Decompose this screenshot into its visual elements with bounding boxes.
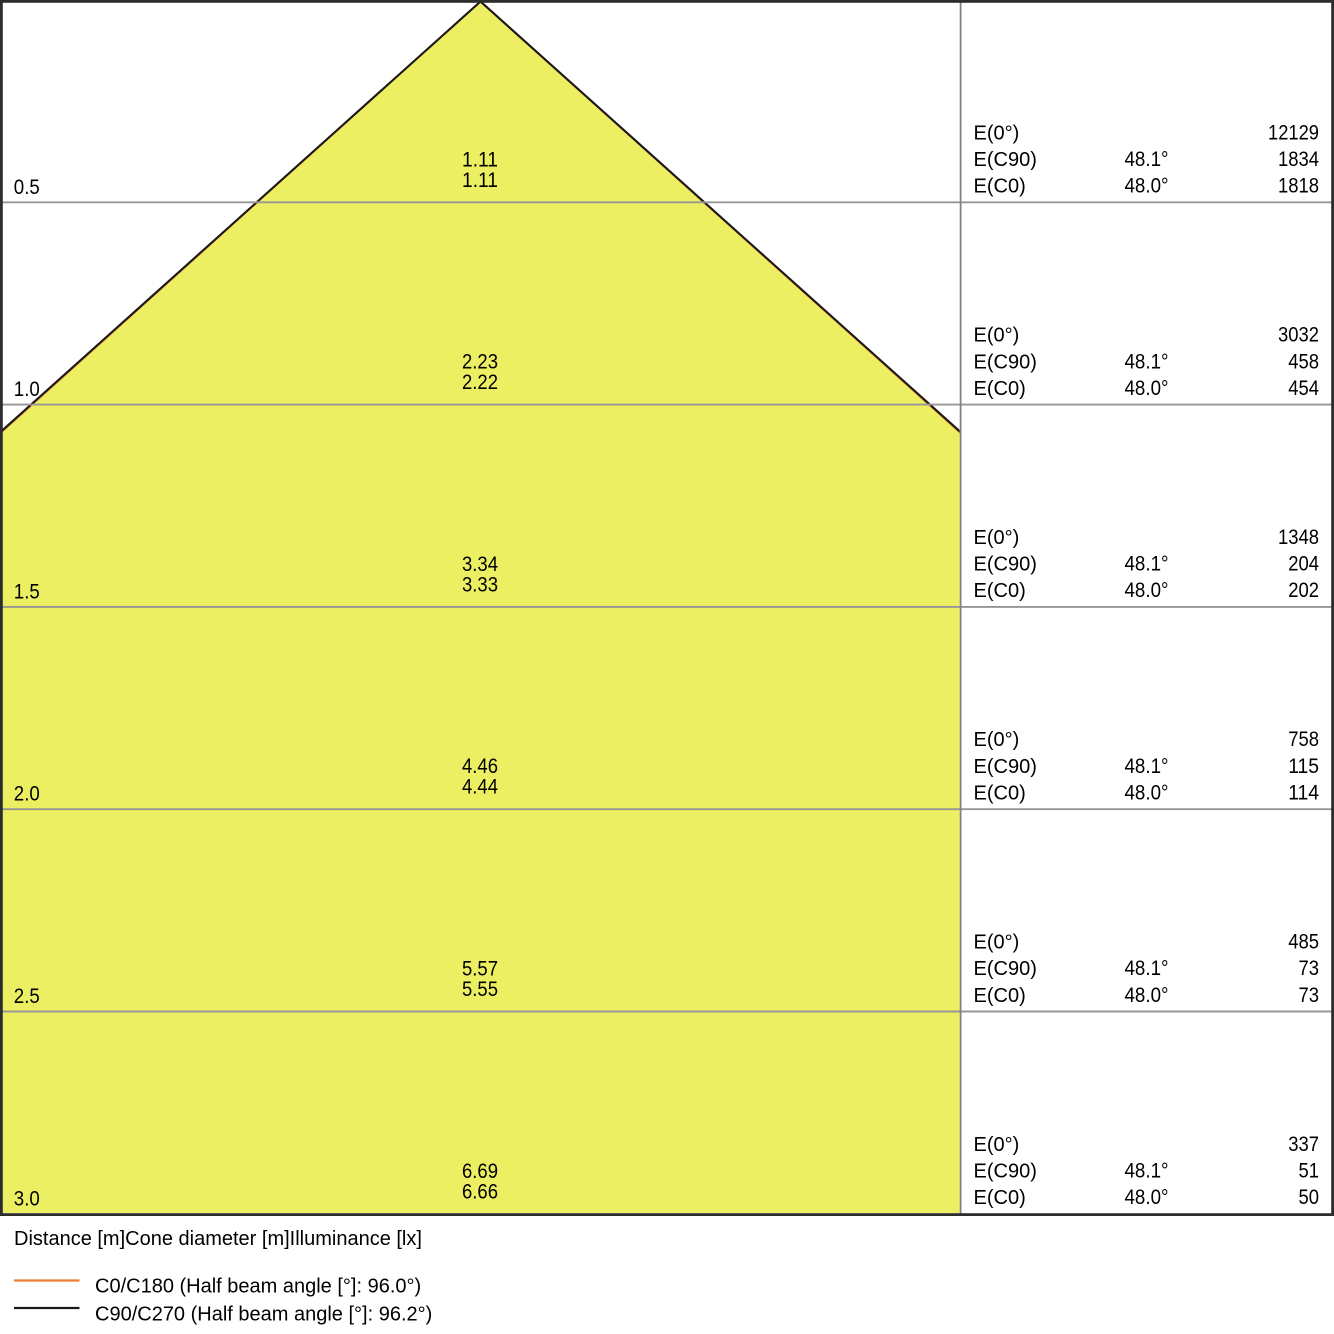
svg-text:51: 51 xyxy=(1299,1160,1320,1183)
svg-text:202: 202 xyxy=(1288,579,1319,602)
svg-text:E(0°): E(0°) xyxy=(974,527,1020,549)
svg-text:204: 204 xyxy=(1288,553,1319,576)
svg-text:50: 50 xyxy=(1299,1186,1320,1209)
svg-text:E(0°): E(0°) xyxy=(974,729,1020,751)
svg-text:48.1°: 48.1° xyxy=(1125,553,1169,576)
svg-text:758: 758 xyxy=(1288,728,1319,751)
svg-text:E(C0): E(C0) xyxy=(974,176,1026,198)
svg-text:3.0: 3.0 xyxy=(14,1188,40,1211)
svg-text:114: 114 xyxy=(1288,782,1319,805)
svg-text:6.66: 6.66 xyxy=(462,1180,498,1203)
svg-text:E(C90): E(C90) xyxy=(974,554,1037,576)
svg-text:454: 454 xyxy=(1288,377,1319,400)
svg-text:E(C0): E(C0) xyxy=(974,985,1026,1007)
svg-text:E(C90): E(C90) xyxy=(974,958,1037,980)
svg-text:48.0°: 48.0° xyxy=(1125,1186,1169,1209)
svg-text:48.0°: 48.0° xyxy=(1125,984,1169,1007)
svg-text:E(0°): E(0°) xyxy=(974,122,1020,144)
svg-text:E(0°): E(0°) xyxy=(974,1134,1020,1156)
svg-text:0.5: 0.5 xyxy=(14,176,40,199)
svg-text:E(C0): E(C0) xyxy=(974,783,1026,805)
svg-text:E(0°): E(0°) xyxy=(974,325,1020,347)
svg-text:337: 337 xyxy=(1288,1133,1319,1156)
svg-text:1.5: 1.5 xyxy=(14,580,40,603)
svg-text:48.0°: 48.0° xyxy=(1125,782,1169,805)
svg-text:48.1°: 48.1° xyxy=(1125,1160,1169,1183)
svg-text:48.1°: 48.1° xyxy=(1125,957,1169,980)
svg-text:48.1°: 48.1° xyxy=(1125,148,1169,171)
svg-text:115: 115 xyxy=(1288,755,1319,778)
svg-text:E(C90): E(C90) xyxy=(974,756,1037,778)
svg-text:1818: 1818 xyxy=(1278,175,1319,198)
svg-text:1.11: 1.11 xyxy=(462,169,498,192)
svg-text:3.33: 3.33 xyxy=(462,573,498,596)
svg-text:E(C0): E(C0) xyxy=(974,378,1026,400)
svg-text:485: 485 xyxy=(1288,931,1319,954)
svg-text:E(C0): E(C0) xyxy=(974,1187,1026,1209)
svg-text:E(C0): E(C0) xyxy=(974,580,1026,602)
svg-text:73: 73 xyxy=(1299,957,1320,980)
svg-text:12129: 12129 xyxy=(1268,121,1319,144)
svg-text:48.0°: 48.0° xyxy=(1125,377,1169,400)
svg-text:1.0: 1.0 xyxy=(14,378,40,401)
svg-text:48.1°: 48.1° xyxy=(1125,350,1169,373)
svg-text:E(C90): E(C90) xyxy=(974,149,1037,171)
svg-text:458: 458 xyxy=(1288,350,1319,373)
svg-text:C90/C270 (Half beam angle [°]:: C90/C270 (Half beam angle [°]: 96.2°) xyxy=(95,1304,432,1326)
svg-text:C0/C180 (Half beam angle [°]:: C0/C180 (Half beam angle [°]: 96.0°) xyxy=(95,1276,421,1298)
svg-text:1834: 1834 xyxy=(1278,148,1319,171)
svg-text:48.0°: 48.0° xyxy=(1125,175,1169,198)
svg-text:3032: 3032 xyxy=(1278,324,1319,347)
svg-text:5.55: 5.55 xyxy=(462,978,498,1001)
svg-text:E(C90): E(C90) xyxy=(974,351,1037,373)
svg-text:2.5: 2.5 xyxy=(14,985,40,1008)
svg-text:1348: 1348 xyxy=(1278,526,1319,549)
svg-text:4.44: 4.44 xyxy=(462,776,498,799)
svg-text:E(C90): E(C90) xyxy=(974,1161,1037,1183)
svg-text:48.0°: 48.0° xyxy=(1125,579,1169,602)
svg-text:2.22: 2.22 xyxy=(462,371,498,394)
svg-text:Distance [m]Cone diameter [m]I: Distance [m]Cone diameter [m]Illuminance… xyxy=(14,1228,422,1250)
svg-text:48.1°: 48.1° xyxy=(1125,755,1169,778)
svg-text:2.0: 2.0 xyxy=(14,783,40,806)
svg-text:E(0°): E(0°) xyxy=(974,932,1020,954)
svg-text:73: 73 xyxy=(1299,984,1320,1007)
